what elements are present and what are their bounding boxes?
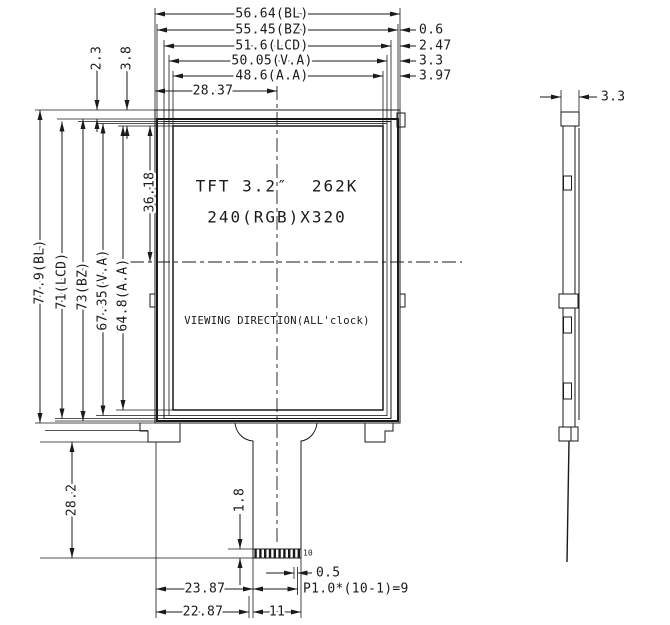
right-side-tab xyxy=(400,294,405,307)
drawing-canvas: TFT 3.2″ 262K 240(RGB)X320 VIEWING DIREC… xyxy=(0,0,670,625)
pin-count-label: 10 xyxy=(303,549,313,558)
dim-tail-drop: 28.2 xyxy=(65,484,80,517)
dim-offset-bz: 0.6 xyxy=(419,23,443,38)
viewing-area-outline xyxy=(169,124,387,416)
dim-half-width: 28.37 xyxy=(193,84,234,99)
dim-pin-length: 1.8 xyxy=(233,488,248,512)
dim-height-va: 67.35(V.A) xyxy=(96,249,111,330)
dim-offset-aa: 3.97 xyxy=(419,69,452,84)
left-extension-stubs-top xyxy=(35,110,173,126)
dim-height-aa: 64.8(A.A) xyxy=(116,258,131,331)
dim-pin-pitch-formula: P1.0*(10-1)=9 xyxy=(303,582,409,597)
dim-pin-width: 0.5 xyxy=(316,566,340,581)
side-view: 3.3 xyxy=(540,90,625,563)
side-bottom-tab xyxy=(559,427,578,441)
dim-offset-lcd: 2.47 xyxy=(419,39,452,54)
side-extension-lines xyxy=(561,90,579,112)
dim-width-va: 50.05(V.A) xyxy=(231,54,312,69)
dim-width-aa: 48.6(A.A) xyxy=(235,69,308,84)
tft-lcd-outline-drawing: TFT 3.2″ 262K 240(RGB)X320 VIEWING DIREC… xyxy=(0,0,670,625)
bottom-extension-lines xyxy=(40,442,301,618)
dim-half-height: 36.18 xyxy=(143,172,158,213)
screen-label-line1: TFT 3.2″ 262K xyxy=(196,177,359,196)
side-fpc-cable xyxy=(567,441,569,562)
top-right-extension-lines xyxy=(383,8,400,126)
top-left-offset-dimensions: 2.3 3.8 xyxy=(35,46,173,139)
dim-height-bz: 73(BZ) xyxy=(76,262,91,311)
dim-pin-offset: 23.87 xyxy=(185,582,226,597)
top-width-dimensions: 56.64(BL) 55.45(BZ) 51.6(LCD) 50.05(V.A)… xyxy=(155,7,452,127)
left-height-dimensions: 77.9(BL) 71(LCD) 73(BZ) 67.35(V.A) 64.8(… xyxy=(33,110,174,431)
side-top-tab xyxy=(561,112,579,126)
dim-top-offset-aa: 3.8 xyxy=(120,46,135,70)
backlight-outline xyxy=(155,110,400,423)
dim-thickness: 3.3 xyxy=(601,90,625,105)
bottom-right-mount-tab xyxy=(365,423,393,442)
left-extension-stubs-bottom xyxy=(35,410,173,431)
dim-height-lcd: 71(LCD) xyxy=(55,253,70,310)
side-clip-middle xyxy=(564,317,572,333)
screen-label-line2: 240(RGB)X320 xyxy=(207,208,347,227)
dim-offset-va: 3.3 xyxy=(419,54,443,69)
dim-width-bl: 56.64(BL) xyxy=(235,7,308,22)
lcd-outline xyxy=(164,122,391,419)
side-clip-upper xyxy=(564,176,572,190)
top-left-extension-lines xyxy=(155,8,173,126)
active-area-outline xyxy=(173,126,383,410)
dim-tail-offset: 22.87 xyxy=(183,605,224,620)
side-clip-lower xyxy=(564,383,572,399)
bezel-outline xyxy=(157,119,398,421)
bottom-left-mount-tab xyxy=(140,423,180,442)
dim-width-lcd: 51.6(LCD) xyxy=(235,39,308,54)
left-side-tab xyxy=(150,294,155,307)
side-mid-tab xyxy=(559,294,578,308)
side-body-outline xyxy=(563,126,579,427)
bottom-dimensions: 28.2 1.8 0.5 23.87 P1.0*(10-1)=9 22.87 1… xyxy=(40,442,409,620)
connector-pins xyxy=(253,549,301,558)
fpc-tail-left-edge xyxy=(235,423,253,549)
dim-height-bl: 77.9(BL) xyxy=(33,239,48,304)
dim-tail-width: 11 xyxy=(269,605,285,620)
dim-width-bz: 55.45(BZ) xyxy=(235,23,308,38)
viewing-direction-label: VIEWING DIRECTION(ALL'clock) xyxy=(184,315,369,327)
dim-top-offset-bz: 2.3 xyxy=(90,46,105,70)
fpc-tail-right-edge xyxy=(301,423,317,549)
